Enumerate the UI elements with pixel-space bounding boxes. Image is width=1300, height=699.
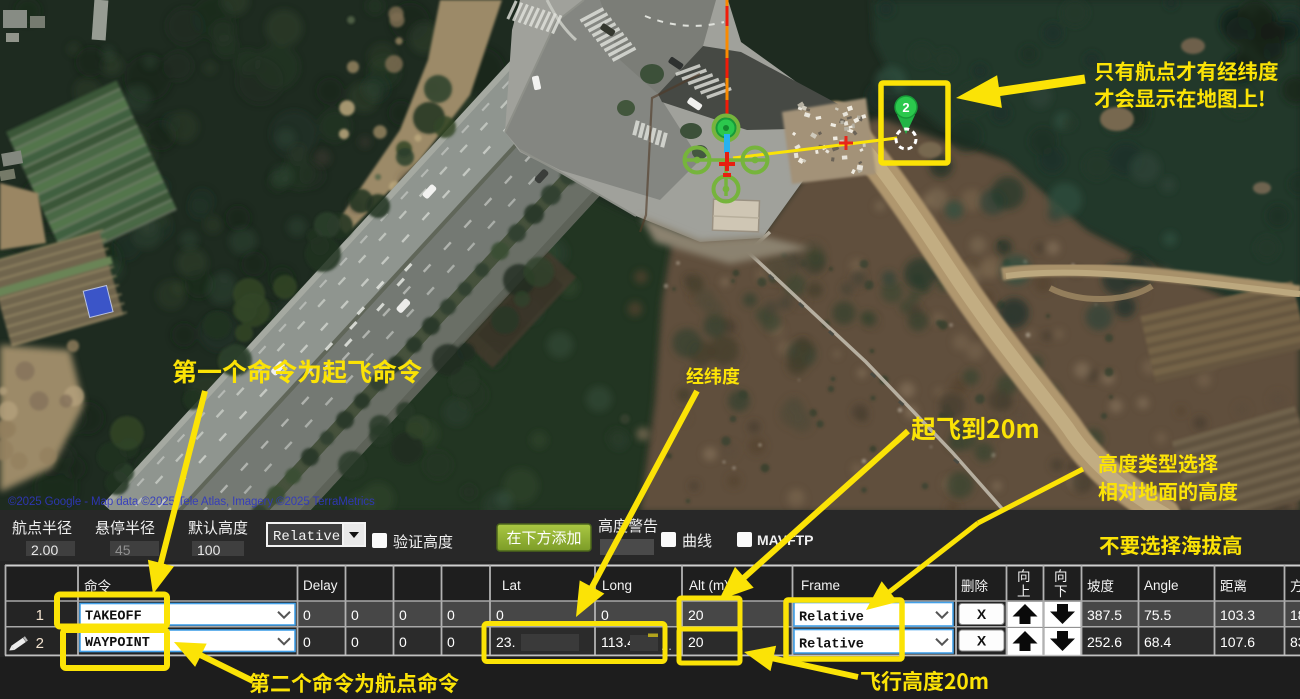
svg-text:0: 0 <box>399 607 407 623</box>
svg-text:第二个命令为航点命令: 第二个命令为航点命令 <box>249 668 459 698</box>
svg-text:0: 0 <box>351 607 359 623</box>
svg-text:下: 下 <box>1054 580 1068 600</box>
svg-text:103.3: 103.3 <box>1220 607 1255 623</box>
svg-text:387.5: 387.5 <box>1087 607 1122 623</box>
svg-text:0: 0 <box>496 607 504 623</box>
svg-text:0: 0 <box>399 634 407 650</box>
svg-text:0: 0 <box>303 634 311 650</box>
svg-text:0: 0 <box>351 634 359 650</box>
svg-text:距离: 距离 <box>1220 575 1247 595</box>
svg-text:Relative: Relative <box>273 529 340 545</box>
svg-text:方: 方 <box>1290 575 1300 595</box>
svg-text:飞行高度20m: 飞行高度20m <box>860 666 989 696</box>
svg-text:默认高度: 默认高度 <box>188 517 248 538</box>
svg-text:TAKEOFF: TAKEOFF <box>85 610 142 625</box>
svg-text:曲线: 曲线 <box>682 530 712 551</box>
svg-text:68.4: 68.4 <box>1144 634 1171 650</box>
svg-text:0: 0 <box>447 634 455 650</box>
svg-text:起飞到20m: 起飞到20m <box>911 410 1040 446</box>
svg-text:Relative: Relative <box>799 611 864 626</box>
svg-text:经纬度: 经纬度 <box>686 363 740 389</box>
svg-text:航点半径: 航点半径 <box>12 517 72 538</box>
svg-text:在下方添加: 在下方添加 <box>506 527 581 548</box>
svg-text:©2025 Google - Map data ©2025: ©2025 Google - Map data ©2025 Tele Atlas… <box>8 496 375 508</box>
svg-text:0: 0 <box>303 607 311 623</box>
svg-text:Alt (m): Alt (m) <box>689 578 729 593</box>
svg-text:18: 18 <box>1290 607 1300 623</box>
svg-text:Delay: Delay <box>303 578 338 593</box>
svg-text:107.6: 107.6 <box>1220 634 1255 650</box>
svg-text:75.5: 75.5 <box>1144 607 1171 623</box>
svg-text:0: 0 <box>601 607 609 623</box>
svg-text:高度类型选择: 高度类型选择 <box>1098 448 1218 477</box>
svg-text:坡度: 坡度 <box>1087 575 1114 595</box>
svg-text:45: 45 <box>115 542 131 558</box>
svg-text:252.6: 252.6 <box>1087 634 1122 650</box>
svg-text:相对地面的高度: 相对地面的高度 <box>1098 476 1238 505</box>
svg-text:Long: Long <box>602 578 632 593</box>
svg-text:WAYPOINT: WAYPOINT <box>85 636 150 651</box>
svg-text:Angle: Angle <box>1144 578 1179 593</box>
svg-text:1: 1 <box>36 607 44 624</box>
svg-text:Relative: Relative <box>799 638 864 653</box>
svg-text:X: X <box>977 633 987 649</box>
svg-text:83: 83 <box>1290 634 1300 650</box>
svg-text:23.: 23. <box>496 634 515 650</box>
svg-text:只有航点才有经纬度: 只有航点才有经纬度 <box>1094 55 1279 85</box>
svg-text:才会显示在地图上!: 才会显示在地图上! <box>1094 82 1266 112</box>
svg-text:悬停半径: 悬停半径 <box>95 517 155 538</box>
svg-text:上: 上 <box>1017 580 1031 600</box>
svg-text:20: 20 <box>688 607 704 623</box>
svg-text:验证高度: 验证高度 <box>393 531 453 552</box>
svg-text:X: X <box>977 606 987 622</box>
svg-text:100: 100 <box>197 542 221 558</box>
svg-text:Frame: Frame <box>801 578 840 593</box>
svg-text:20: 20 <box>688 634 704 650</box>
svg-text:删除: 删除 <box>961 575 989 595</box>
svg-text:Lat: Lat <box>502 578 521 593</box>
svg-text:0: 0 <box>447 607 455 623</box>
svg-text:第一个命令为起飞命令: 第一个命令为起飞命令 <box>172 353 422 389</box>
svg-text:2: 2 <box>902 100 909 115</box>
svg-text:不要选择海拔高: 不要选择海拔高 <box>1099 529 1243 559</box>
svg-text:2: 2 <box>36 635 44 652</box>
svg-text:2.00: 2.00 <box>31 542 58 558</box>
